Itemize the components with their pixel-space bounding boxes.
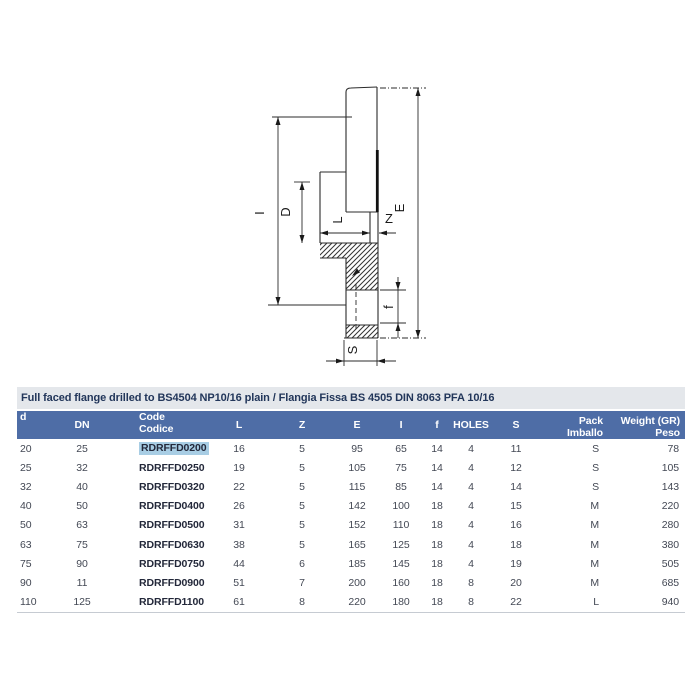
table-row: 9011RDRFFD090051720016018820M685 [17, 573, 685, 592]
col-header-label: Z [299, 419, 305, 431]
table-cell: 5 [271, 535, 333, 554]
col-header-label: E [354, 419, 361, 431]
table-cell: 125 [47, 593, 117, 612]
table-cell: 78 [607, 439, 685, 458]
table-cell: 165 [333, 535, 381, 554]
table-cell: L [543, 593, 607, 612]
col-header-label: Weight (GR) [621, 415, 680, 427]
table-cell: 4 [453, 554, 489, 573]
table-cell: 85 [381, 477, 421, 496]
col-header-code: CodeCodice [117, 411, 207, 439]
table-cell: S [543, 439, 607, 458]
dimension-L-label: L [330, 216, 345, 223]
dimension-E-label: E [392, 203, 407, 212]
table-cell: 8 [271, 593, 333, 612]
table-cell: 145 [381, 554, 421, 573]
table-cell: 16 [489, 516, 543, 535]
dimension-S-label: S [345, 345, 360, 354]
table-cell: 180 [381, 593, 421, 612]
product-code-cell[interactable]: RDRFFD0750 [117, 554, 207, 573]
product-code-cell[interactable]: RDRFFD0400 [117, 497, 207, 516]
table-header-row: d DN CodeCodice L Z E I f HOLES S PackIm… [17, 411, 685, 439]
table-cell: 18 [421, 535, 453, 554]
table-cell: 14 [421, 477, 453, 496]
table-cell: 110 [17, 593, 47, 612]
col-header-I: I [381, 411, 421, 439]
col-header-label: d [20, 411, 26, 423]
table-cell: 50 [17, 516, 47, 535]
col-header-E: E [333, 411, 381, 439]
table-cell: 105 [607, 458, 685, 477]
col-header-S: S [489, 411, 543, 439]
product-code-cell[interactable]: RDRFFD0630 [117, 535, 207, 554]
table-bottom-border [17, 612, 685, 613]
col-header-L: L [207, 411, 271, 439]
col-header-label: Pack [579, 415, 603, 427]
catalog-page: { "title": "Full faced flange drilled to… [0, 0, 700, 700]
table-cell: M [543, 516, 607, 535]
dimension-I-label: I [252, 211, 267, 215]
col-header-weight: Weight (GR)Peso [607, 411, 685, 439]
col-header-holes: HOLES [453, 411, 489, 439]
flange-section-drawing: I D L Z E f S [230, 70, 480, 380]
col-header-pack: PackImballo [543, 411, 607, 439]
table-cell: 200 [333, 573, 381, 592]
col-header-label: S [513, 419, 520, 431]
table-cell: 6 [271, 554, 333, 573]
table-cell: 95 [333, 439, 381, 458]
table-cell: 115 [333, 477, 381, 496]
table-cell: 5 [271, 497, 333, 516]
table-cell: 142 [333, 497, 381, 516]
table-cell: 25 [17, 458, 47, 477]
col-header-label: I [400, 419, 403, 431]
table-cell: 152 [333, 516, 381, 535]
table-cell: 5 [271, 458, 333, 477]
table-cell: 75 [47, 535, 117, 554]
table-cell: M [543, 535, 607, 554]
table-cell: 15 [489, 497, 543, 516]
table-cell: 38 [207, 535, 271, 554]
table-cell: 63 [47, 516, 117, 535]
table-cell: 12 [489, 458, 543, 477]
table-cell: 20 [489, 573, 543, 592]
table-cell: 380 [607, 535, 685, 554]
table-cell: 18 [421, 593, 453, 612]
col-header-Z: Z [271, 411, 333, 439]
table-row: 3240RDRFFD03202251158514414S143 [17, 477, 685, 496]
col-header-label: HOLES [453, 419, 489, 431]
table-row: 2532RDRFFD02501951057514412S105 [17, 458, 685, 477]
col-header-label: Imballo [567, 427, 603, 439]
table-cell: 90 [47, 554, 117, 573]
table-cell: 75 [17, 554, 47, 573]
table-cell: 25 [47, 439, 117, 458]
table-cell: 51 [207, 573, 271, 592]
table-cell: 8 [453, 593, 489, 612]
table-row: 5063RDRFFD050031515211018416M280 [17, 516, 685, 535]
table-cell: 18 [421, 497, 453, 516]
table-cell: 61 [207, 593, 271, 612]
dimension-lines [268, 88, 426, 366]
table-cell: 5 [271, 439, 333, 458]
table-cell: 19 [489, 554, 543, 573]
highlighted-product-code[interactable]: RDRFFD0200 [139, 442, 209, 455]
table-cell: 8 [453, 573, 489, 592]
dimension-f-label: f [381, 305, 396, 309]
table-cell: 18 [489, 535, 543, 554]
table-cell: 105 [333, 458, 381, 477]
table-cell: 4 [453, 439, 489, 458]
dimension-D-label: D [278, 207, 293, 216]
product-code-cell[interactable]: RDRFFD0320 [117, 477, 207, 496]
table-cell: 22 [207, 477, 271, 496]
product-code-cell[interactable]: RDRFFD0250 [117, 458, 207, 477]
flange-outline [320, 87, 378, 338]
table-cell: 63 [17, 535, 47, 554]
table-row: 7590RDRFFD075044618514518419M505 [17, 554, 685, 573]
col-header-label: Code [139, 411, 165, 423]
col-header-label: Codice [139, 423, 173, 435]
table-cell: 160 [381, 573, 421, 592]
table-cell: 4 [453, 535, 489, 554]
table-row: 2025RDRFFD0200165956514411S78 [17, 439, 685, 458]
col-header-label: f [435, 419, 438, 431]
product-code-cell[interactable]: RDRFFD0200 [117, 439, 207, 458]
table-cell: 32 [47, 458, 117, 477]
table-cell: 14 [421, 439, 453, 458]
table-cell: 19 [207, 458, 271, 477]
table-cell: 220 [333, 593, 381, 612]
table-cell: 20 [17, 439, 47, 458]
col-header-label: Peso [655, 427, 680, 439]
technical-drawing: I D L Z E f S [230, 70, 480, 380]
table-title: Full faced flange drilled to BS4504 NP10… [17, 387, 685, 409]
table-cell: 75 [381, 458, 421, 477]
table-cell: 125 [381, 535, 421, 554]
table-cell: 32 [17, 477, 47, 496]
table-cell: 26 [207, 497, 271, 516]
table-cell: 16 [207, 439, 271, 458]
product-code-cell[interactable]: RDRFFD0500 [117, 516, 207, 535]
table-cell: 5 [271, 477, 333, 496]
table-cell: 4 [453, 497, 489, 516]
table-cell: 44 [207, 554, 271, 573]
table-cell: 14 [421, 458, 453, 477]
table-row: 110125RDRFFD110061822018018822L940 [17, 593, 685, 612]
table-cell: 65 [381, 439, 421, 458]
product-code-cell[interactable]: RDRFFD1100 [117, 593, 207, 612]
table-cell: 11 [489, 439, 543, 458]
table-cell: S [543, 458, 607, 477]
table-cell: 685 [607, 573, 685, 592]
table-cell: 11 [47, 573, 117, 592]
flange-hatch-region [320, 243, 378, 290]
table-cell: 4 [453, 458, 489, 477]
col-header-dn: DN [47, 411, 117, 439]
table-cell: S [543, 477, 607, 496]
col-header-f: f [421, 411, 453, 439]
table-cell: 18 [421, 573, 453, 592]
table-body: 2025RDRFFD0200165956514411S782532RDRFFD0… [17, 439, 685, 612]
col-header-label: L [236, 419, 242, 431]
table-cell: M [543, 497, 607, 516]
product-code-cell[interactable]: RDRFFD0900 [117, 573, 207, 592]
table-cell: 31 [207, 516, 271, 535]
col-header-d: d [17, 411, 47, 439]
table-cell: 40 [17, 497, 47, 516]
table-row: 6375RDRFFD063038516512518418M380 [17, 535, 685, 554]
col-header-label: DN [75, 419, 90, 431]
table-cell: 90 [17, 573, 47, 592]
table-cell: 4 [453, 477, 489, 496]
table-cell: 40 [47, 477, 117, 496]
table-cell: 220 [607, 497, 685, 516]
table-cell: 22 [489, 593, 543, 612]
table-cell: 940 [607, 593, 685, 612]
table-cell: 50 [47, 497, 117, 516]
table-cell: 18 [421, 516, 453, 535]
table-cell: 110 [381, 516, 421, 535]
table-cell: 14 [489, 477, 543, 496]
table-cell: 185 [333, 554, 381, 573]
table-cell: M [543, 554, 607, 573]
table-cell: 5 [271, 516, 333, 535]
table-cell: M [543, 573, 607, 592]
flange-hatch-region-bottom [346, 325, 378, 338]
table-cell: 505 [607, 554, 685, 573]
table-cell: 7 [271, 573, 333, 592]
table-cell: 4 [453, 516, 489, 535]
dimension-arrowheads [276, 88, 421, 363]
table-row: 4050RDRFFD040026514210018415M220 [17, 497, 685, 516]
table-cell: 100 [381, 497, 421, 516]
table-cell: 18 [421, 554, 453, 573]
table-cell: 143 [607, 477, 685, 496]
table-cell: 280 [607, 516, 685, 535]
